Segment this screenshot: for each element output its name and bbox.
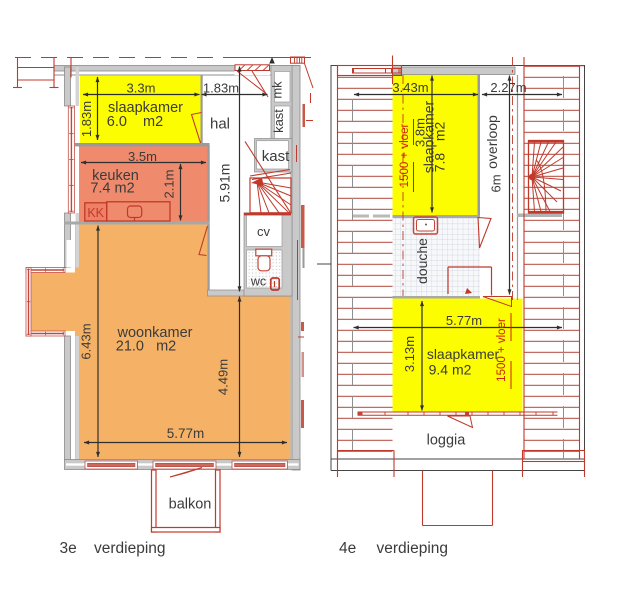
svg-text:6m: 6m (489, 174, 504, 192)
svg-text:douche: douche (414, 238, 430, 284)
svg-text:wc: wc (250, 275, 266, 289)
svg-text:cv: cv (257, 224, 271, 239)
svg-text:balkon: balkon (169, 497, 212, 513)
svg-text:2.1m: 2.1m (162, 170, 177, 199)
svg-text:1500 + vloer: 1500 + vloer (399, 124, 411, 188)
svg-text:1.83m: 1.83m (203, 81, 239, 96)
svg-text:loggia: loggia (427, 433, 467, 449)
svg-text:3.5m: 3.5m (128, 149, 157, 164)
svg-text:3.43m: 3.43m (392, 80, 428, 95)
svg-text:4e: 4e (339, 540, 356, 557)
svg-text:slaapkamer: slaapkamer (427, 346, 500, 362)
svg-text:7.4 m2: 7.4 m2 (90, 181, 134, 197)
svg-text:2.27m: 2.27m (490, 80, 526, 95)
svg-text:verdieping: verdieping (377, 540, 449, 557)
svg-text:21.0 m2: 21.0 m2 (116, 339, 176, 355)
svg-text:3e: 3e (60, 540, 77, 557)
svg-text:1.83m: 1.83m (79, 101, 94, 137)
svg-text:3.13m: 3.13m (402, 336, 417, 372)
svg-text:kast: kast (271, 109, 286, 133)
svg-text:6.43m: 6.43m (79, 323, 94, 359)
svg-text:1500 + vloer: 1500 + vloer (496, 318, 508, 382)
svg-text:mk: mk (270, 81, 285, 99)
svg-text:5.77m: 5.77m (167, 426, 205, 441)
svg-text:6.0 m2: 6.0 m2 (107, 114, 163, 130)
svg-text:4.49m: 4.49m (216, 359, 231, 395)
svg-text:5.91m: 5.91m (217, 164, 233, 203)
svg-text:verdieping: verdieping (94, 540, 166, 557)
svg-text:KK: KK (87, 206, 104, 220)
svg-text:hal: hal (210, 116, 230, 133)
svg-text:7.8 m2: 7.8 m2 (432, 122, 448, 173)
svg-text:5.77m: 5.77m (446, 313, 482, 328)
svg-text:overloop: overloop (484, 115, 500, 169)
svg-text:3.3m: 3.3m (127, 81, 156, 96)
svg-text:9.4 m2: 9.4 m2 (429, 362, 472, 378)
svg-text:kast: kast (262, 148, 290, 165)
